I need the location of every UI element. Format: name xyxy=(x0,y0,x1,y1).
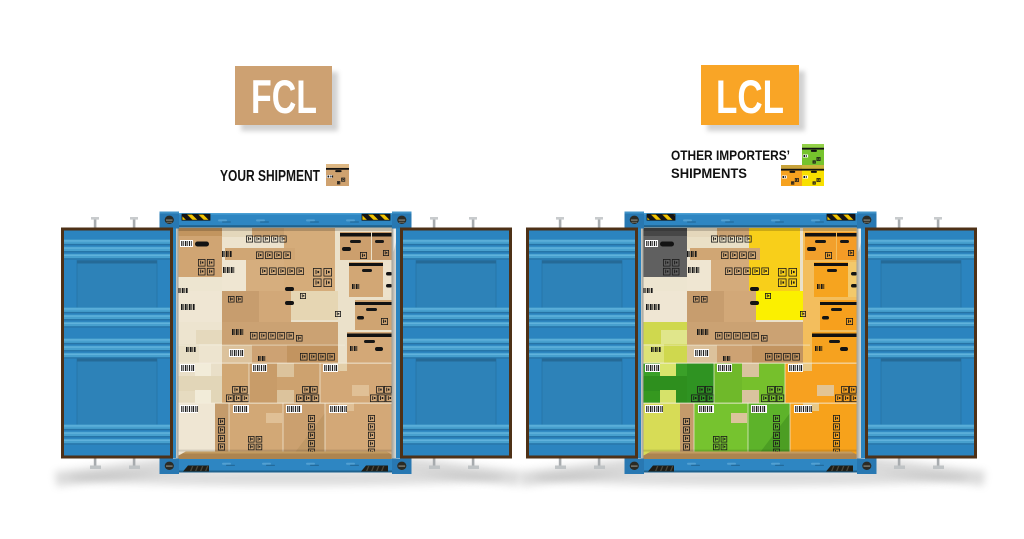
svg-text:OTHER IMPORTERS’: OTHER IMPORTERS’ xyxy=(671,147,790,163)
svg-text:SHIPMENTS: SHIPMENTS xyxy=(671,165,747,181)
svg-text:YOUR SHIPMENT: YOUR SHIPMENT xyxy=(220,168,320,185)
svg-text:FCL: FCL xyxy=(251,70,317,123)
svg-text:LCL: LCL xyxy=(716,70,784,123)
